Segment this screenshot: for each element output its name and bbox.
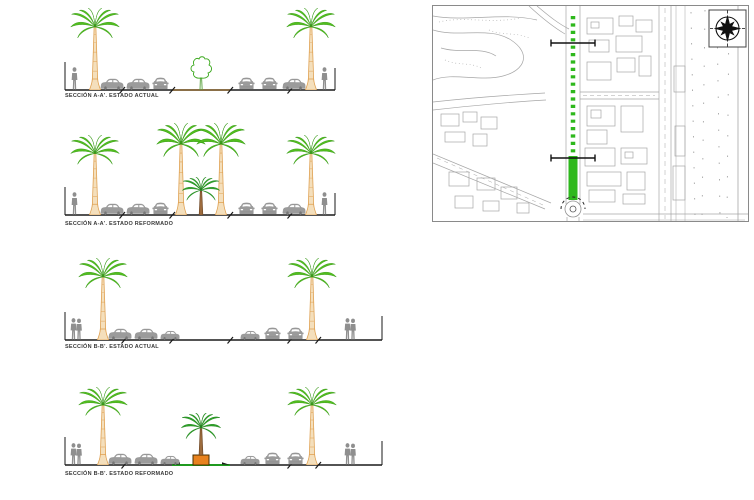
map-linework [433,6,748,221]
person-icon [71,318,77,339]
palm-tree-icon [287,8,336,90]
car-side-icon [135,329,157,340]
car-side-icon [101,79,123,90]
section-a-actual-drawing [60,4,400,98]
person-icon [76,444,82,465]
palm-tree-icon [71,135,120,215]
car-front-icon [287,328,303,339]
palm-tree-icon [79,258,128,340]
car-front-icon [264,328,280,339]
small-palm-icon [182,177,220,215]
section-label: SECCIÓN A-A'. ESTADO ACTUAL [65,93,159,99]
car-side-icon [161,331,180,340]
car-front-icon [238,203,254,214]
car-side-icon [135,454,157,465]
car-front-icon [261,78,277,89]
person-icon [76,319,82,340]
car-front-icon [152,78,168,89]
palm-tree-icon [197,123,246,215]
compass-rose-icon [709,10,746,47]
car-front-icon [264,453,280,464]
palm-tree-icon [79,387,128,465]
palm-tree-icon [157,123,206,215]
section-label: SECCIÓN B-B'. ESTADO REFORMADO [65,471,173,477]
section-a-reformado: SECCIÓN A-A'. ESTADO REFORMADO [60,120,400,232]
car-side-icon [283,204,305,215]
palm-tree-icon [71,8,120,90]
palm-tree-icon [288,258,337,340]
section-b-reformado-drawing [60,377,400,475]
car-side-icon [241,456,260,465]
car-side-icon [101,204,123,215]
person-icon [72,67,78,89]
person-icon [350,444,356,465]
car-side-icon [241,331,260,340]
section-b-reformado: SECCIÓN B-B'. ESTADO REFORMADO [60,377,400,485]
person-icon [350,319,356,340]
person-icon [345,443,351,464]
location-map [432,5,749,222]
section-label: SECCIÓN B-B'. ESTADO ACTUAL [65,344,159,350]
car-front-icon [152,203,168,214]
person-icon [71,443,77,464]
drawing-sheet: SECCIÓN A-A'. ESTADO ACTUAL SECCIÓN A-A'… [0,0,754,500]
section-b-actual-drawing [60,254,400,346]
car-side-icon [161,456,180,465]
car-side-icon [109,454,131,465]
car-front-icon [287,453,303,464]
section-label: SECCIÓN A-A'. ESTADO REFORMADO [65,221,173,227]
existing-tree-icon [191,57,212,90]
person-icon [322,67,328,89]
car-side-icon [283,79,305,90]
location-map-drawing [433,6,748,221]
section-b-actual: SECCIÓN B-B'. ESTADO ACTUAL [60,254,400,354]
small-palm-icon [181,413,220,455]
section-a-reformado-drawing [60,120,400,222]
car-front-icon [261,203,277,214]
palm-tree-icon [287,135,336,215]
car-front-icon [238,78,254,89]
section-a-actual: SECCIÓN A-A'. ESTADO ACTUAL [60,4,400,106]
car-side-icon [127,79,149,90]
person-icon [345,318,351,339]
planter-box [193,455,209,465]
person-icon [72,192,78,214]
person-icon [322,192,328,214]
car-side-icon [127,204,149,215]
car-side-icon [109,329,131,340]
